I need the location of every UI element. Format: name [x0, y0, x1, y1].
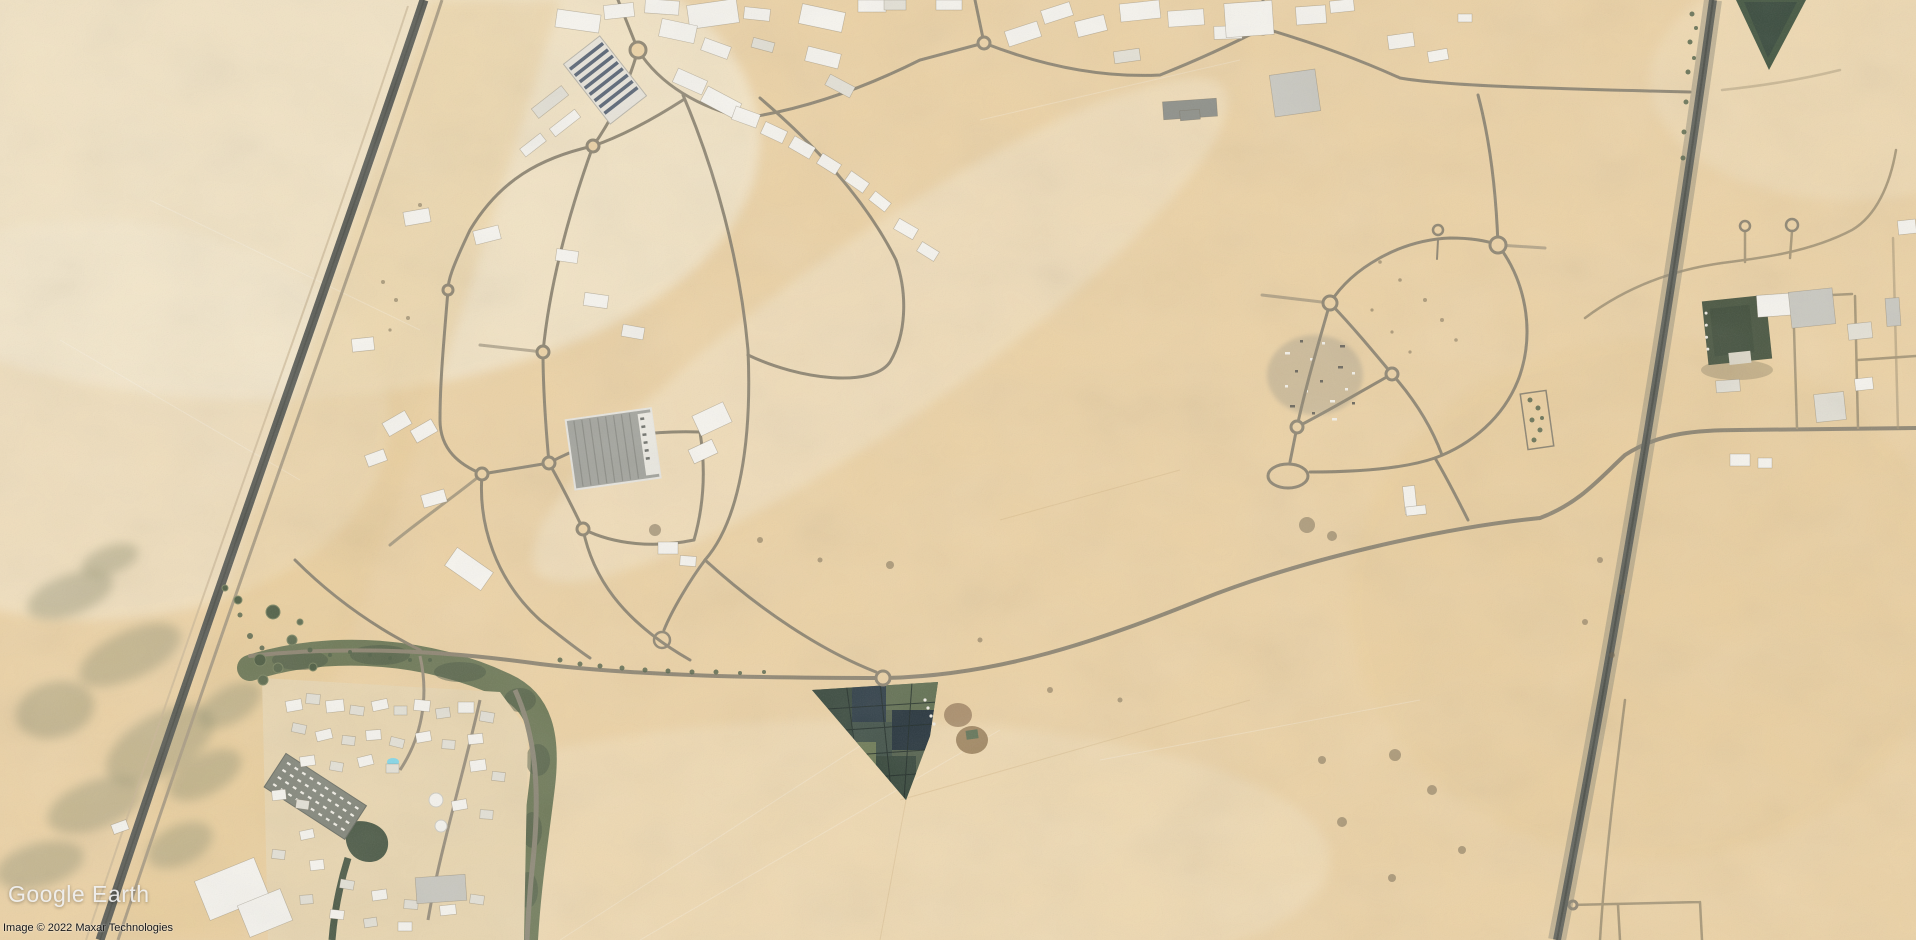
satellite-viewport[interactable]: Google Earth Image © 2022 Maxar Technolo…	[0, 0, 1916, 940]
google-earth-watermark: Google Earth	[8, 881, 150, 908]
satellite-map	[0, 0, 1916, 940]
grain-overlay	[0, 0, 1916, 940]
imagery-attribution: Image © 2022 Maxar Technologies	[3, 922, 173, 934]
